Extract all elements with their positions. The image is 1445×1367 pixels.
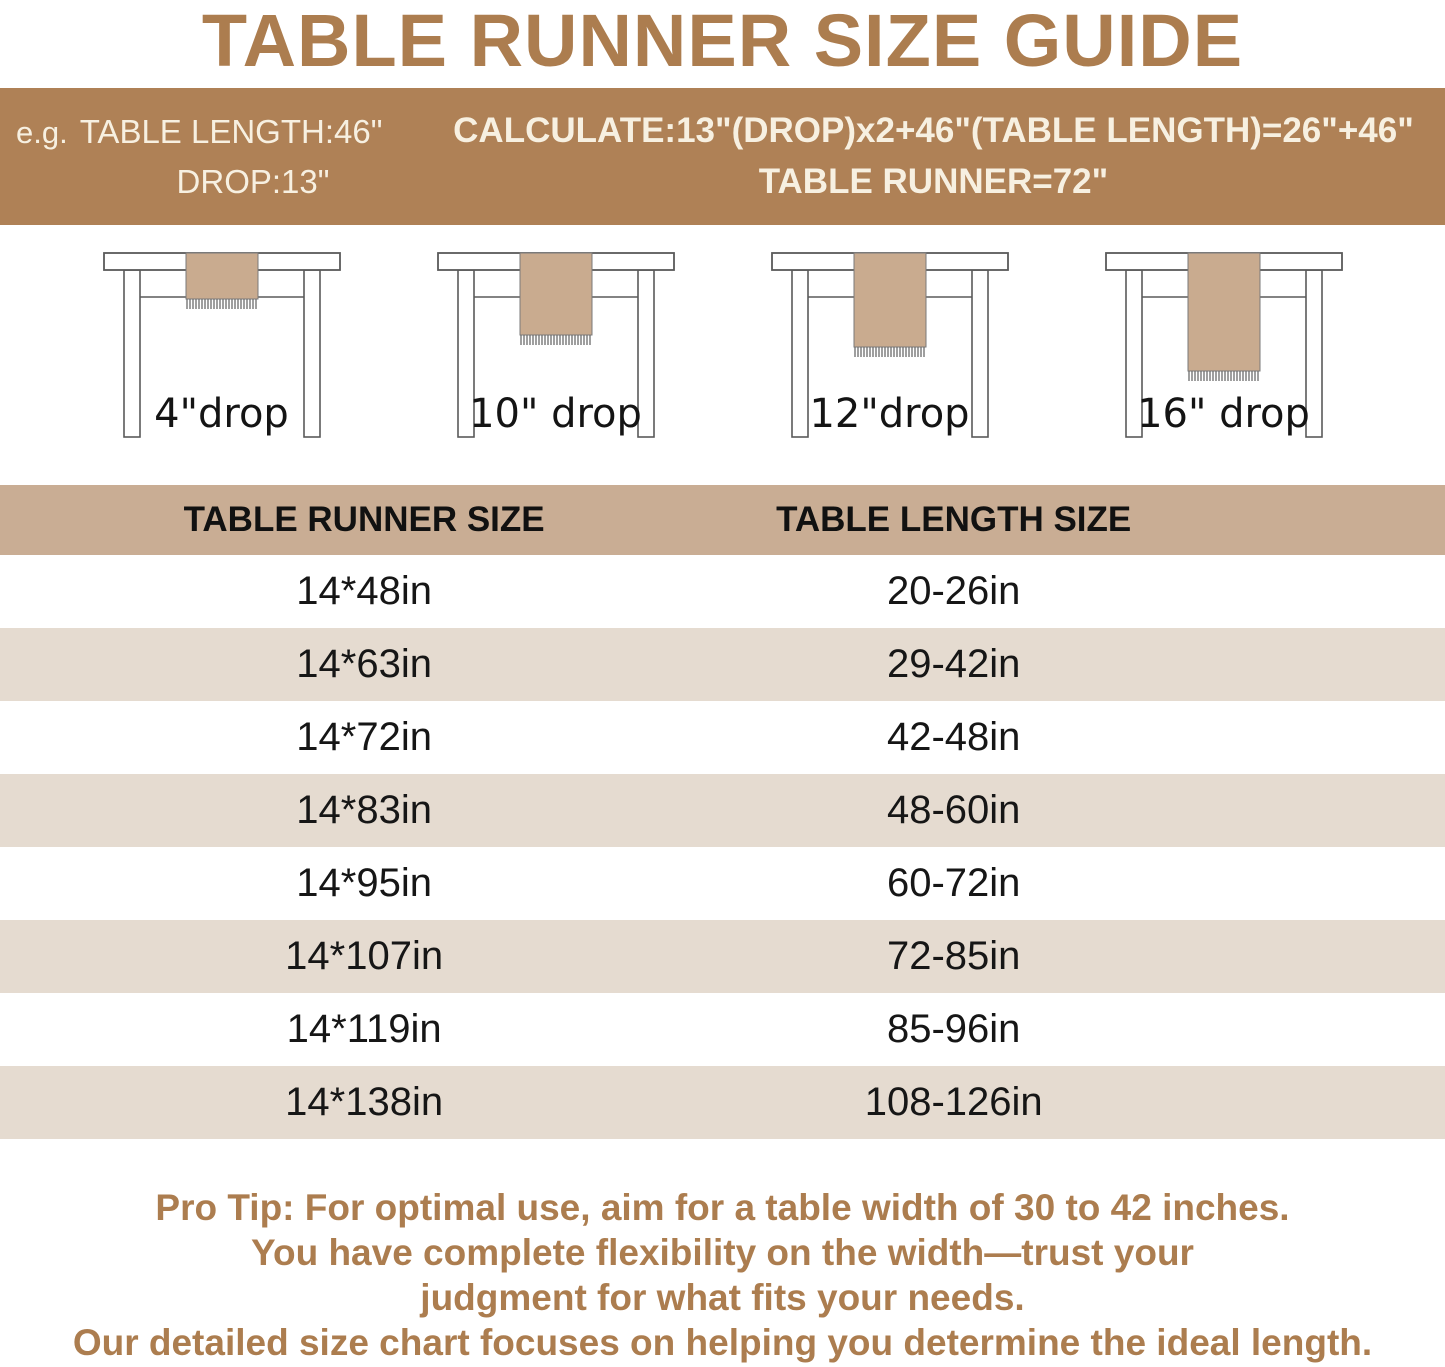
page-title: TABLE RUNNER SIZE GUIDE	[0, 0, 1445, 88]
runner-size-cell: 14*95in	[0, 861, 728, 906]
table-length-cell: 29-42in	[728, 642, 1179, 687]
runner-drape	[854, 253, 926, 347]
table-row: 14*63in29-42in	[0, 628, 1445, 701]
table-row: 14*48in20-26in	[0, 555, 1445, 628]
pro-tip-line: You have complete flexibility on the wid…	[0, 1230, 1445, 1275]
table-length-cell: 108-126in	[728, 1080, 1179, 1125]
size-table-body: 14*48in20-26in14*63in29-42in14*72in42-48…	[0, 555, 1445, 1139]
table-length-cell: 42-48in	[728, 715, 1179, 760]
table-row: 14*107in72-85in	[0, 920, 1445, 993]
runner-drape	[1188, 253, 1260, 371]
example-block: e.g. TABLE LENGTH:46" DROP:13"	[16, 107, 448, 206]
calculation-block: CALCULATE:13"(DROP)x2+46"(TABLE LENGTH)=…	[448, 106, 1419, 208]
table-illustration: 4"drop	[102, 241, 342, 481]
table-row: 14*138in108-126in	[0, 1066, 1445, 1139]
table-length-cell: 20-26in	[728, 569, 1179, 614]
drop-label: 10" drop	[436, 391, 676, 437]
size-table: TABLE RUNNER SIZE TABLE LENGTH SIZE 14*4…	[0, 485, 1445, 1139]
table-row: 14*95in60-72in	[0, 847, 1445, 920]
runner-size-cell: 14*48in	[0, 569, 728, 614]
table-length-cell: 48-60in	[728, 788, 1179, 833]
pro-tip-line: judgment for what fits your needs.	[0, 1275, 1445, 1320]
pro-tip-line: Our detailed size chart focuses on helpi…	[0, 1320, 1445, 1365]
table-row: 14*119in85-96in	[0, 993, 1445, 1066]
table-length-cell: 85-96in	[728, 1007, 1179, 1052]
runner-size-cell: 14*138in	[0, 1080, 728, 1125]
example-prefix: e.g.	[16, 110, 68, 157]
runner-drape	[186, 253, 258, 299]
example-drop: DROP:13"	[83, 157, 423, 207]
drop-label: 4"drop	[102, 391, 342, 437]
runner-size-cell: 14*83in	[0, 788, 728, 833]
drop-label: 12"drop	[770, 391, 1010, 437]
calc-result-line: TABLE RUNNER=72"	[448, 157, 1419, 208]
table-illustration: 10" drop	[436, 241, 676, 481]
drop-illustrations: 4"drop10" drop12"drop16" drop	[0, 225, 1445, 485]
table-row: 14*72in42-48in	[0, 701, 1445, 774]
pro-tip-line: Pro Tip: For optimal use, aim for a tabl…	[0, 1185, 1445, 1230]
pro-tip: Pro Tip: For optimal use, aim for a tabl…	[0, 1185, 1445, 1365]
example-table-length: TABLE LENGTH:46"	[80, 107, 383, 157]
table-length-cell: 60-72in	[728, 861, 1179, 906]
table-row: 14*83in48-60in	[0, 774, 1445, 847]
column-header-table-length: TABLE LENGTH SIZE	[728, 500, 1179, 540]
example-banner: e.g. TABLE LENGTH:46" DROP:13" CALCULATE…	[0, 88, 1445, 225]
drop-label: 16" drop	[1104, 391, 1344, 437]
table-illustration: 12"drop	[770, 241, 1010, 481]
column-header-runner-size: TABLE RUNNER SIZE	[0, 500, 728, 540]
calc-formula-line: CALCULATE:13"(DROP)x2+46"(TABLE LENGTH)=…	[448, 106, 1419, 157]
runner-size-cell: 14*72in	[0, 715, 728, 760]
runner-size-cell: 14*119in	[0, 1007, 728, 1052]
table-illustration: 16" drop	[1104, 241, 1344, 481]
table-length-cell: 72-85in	[728, 934, 1179, 979]
size-table-header: TABLE RUNNER SIZE TABLE LENGTH SIZE	[0, 485, 1445, 555]
runner-drape	[520, 253, 592, 335]
runner-size-cell: 14*107in	[0, 934, 728, 979]
runner-size-cell: 14*63in	[0, 642, 728, 687]
